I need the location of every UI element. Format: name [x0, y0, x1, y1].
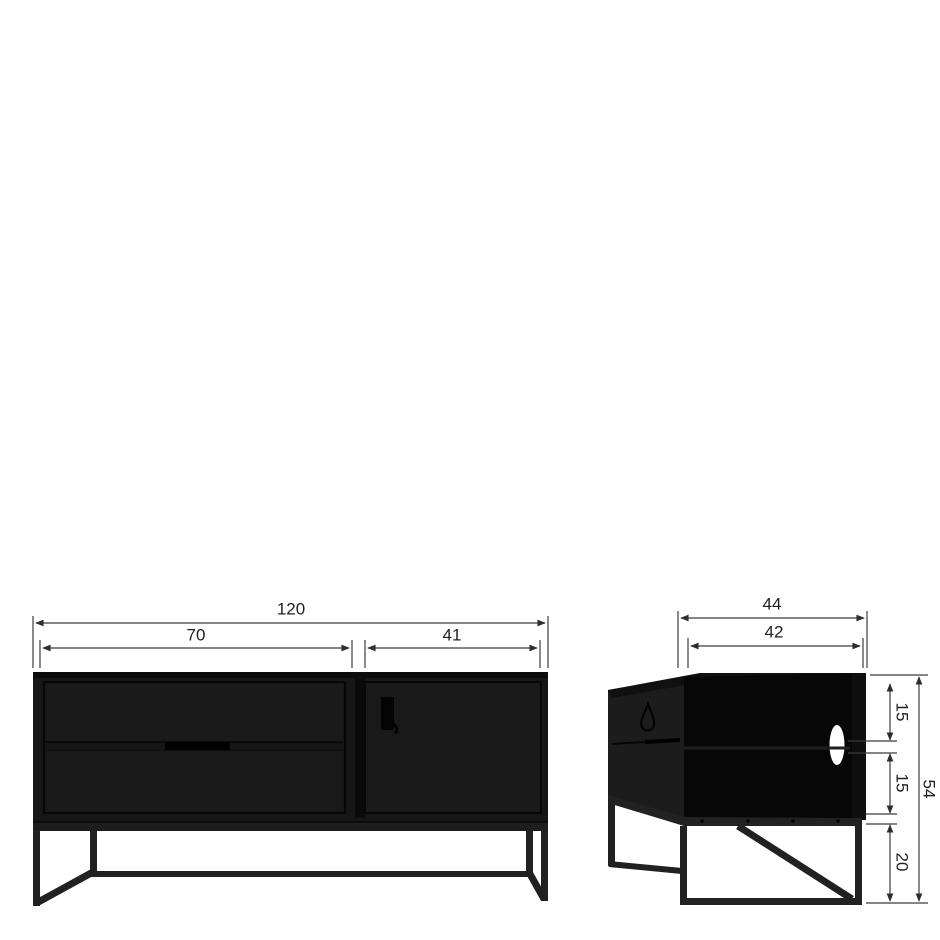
side-right-panel — [852, 673, 866, 820]
lower-drawer-front — [46, 751, 343, 812]
screw-icon — [836, 819, 839, 822]
dim-label-door-section-width: 41 — [443, 627, 462, 644]
front-left-leg-diagonal — [37, 872, 94, 903]
side-drawer-slot-dark — [645, 740, 680, 742]
screw-icon — [746, 819, 749, 822]
front-base-rail — [33, 822, 548, 831]
upper-drawer-front — [46, 684, 343, 741]
side-leg-diagonal — [738, 826, 852, 899]
cable-hole — [830, 725, 845, 765]
dim-label-total-depth: 44 — [763, 596, 782, 613]
section-divider — [355, 678, 365, 818]
screw-icon — [791, 819, 794, 822]
side-view — [608, 673, 866, 905]
dim-label-inner-depth: 42 — [765, 624, 784, 641]
drawer-handle-notch — [165, 742, 230, 750]
side-far-bottom-rail — [609, 864, 682, 871]
dim-label-drawer-section-width: 70 — [187, 627, 206, 644]
front-base-legs — [37, 831, 545, 906]
front-cabinet-top-edge — [33, 672, 548, 678]
dim-label-total-height: 54 — [921, 780, 938, 799]
door-handle — [381, 697, 394, 730]
dim-label-lower-compartment-height: 15 — [894, 774, 911, 793]
dim-label-leg-height: 20 — [894, 853, 911, 872]
front-view — [33, 672, 548, 906]
dimension-drawing-canvas: 120 70 41 44 42 15 15 20 54 — [0, 0, 940, 940]
furniture-dimension-drawing — [0, 0, 940, 940]
dim-label-upper-compartment-height: 15 — [894, 703, 911, 722]
dim-label-total-width: 120 — [277, 601, 305, 618]
screw-icon — [700, 819, 703, 822]
